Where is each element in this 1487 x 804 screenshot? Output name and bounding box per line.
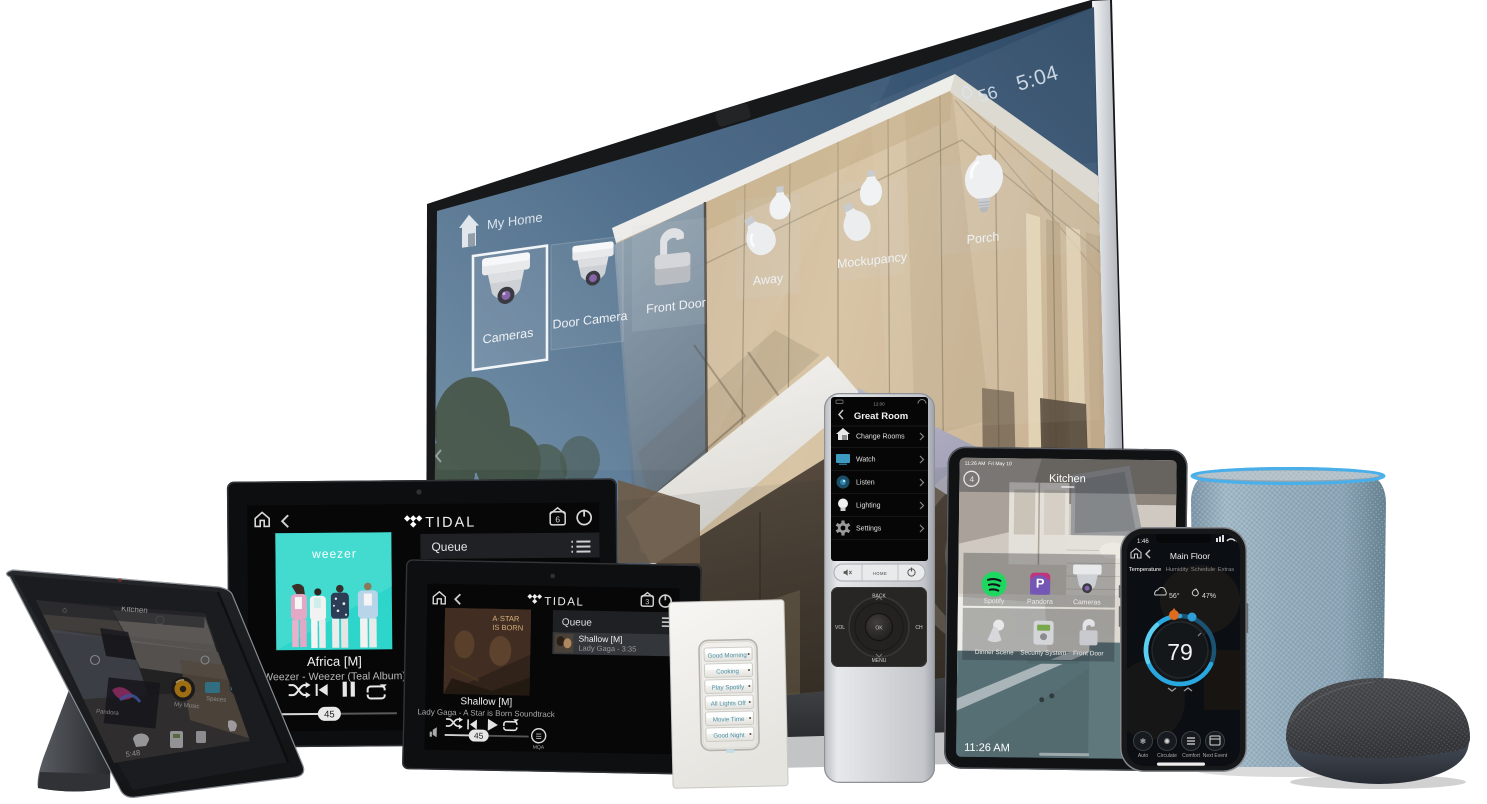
svg-text:Movie Time: Movie Time: [713, 716, 745, 724]
svg-text:VOL: VOL: [835, 625, 845, 631]
svg-text:11:26 AM Fri May 10: 11:26 AM Fri May 10: [965, 461, 1012, 468]
svg-text:Lady Gaga - 3:35: Lady Gaga - 3:35: [578, 644, 636, 654]
svg-text:weezer: weezer: [311, 547, 357, 561]
svg-text:Cameras: Cameras: [1073, 599, 1101, 606]
svg-text:Schedule: Schedule: [1191, 567, 1215, 573]
svg-text:TIDAL: TIDAL: [544, 596, 584, 609]
svg-text:IS BORN: IS BORN: [492, 623, 523, 633]
svg-text:6: 6: [555, 514, 560, 524]
svg-text:Auto: Auto: [1138, 753, 1149, 759]
svg-text:Shallow [M]: Shallow [M]: [460, 696, 512, 708]
svg-text:Front Door: Front Door: [1073, 650, 1104, 657]
svg-text:45: 45: [474, 731, 484, 741]
svg-text:Circulate: Circulate: [1157, 753, 1177, 759]
svg-text:79: 79: [1167, 639, 1193, 665]
svg-text:12:00: 12:00: [873, 402, 885, 407]
svg-text:TIDAL: TIDAL: [425, 515, 476, 531]
svg-text:Settings: Settings: [856, 526, 882, 533]
svg-text:HOME: HOME: [873, 571, 888, 576]
svg-text:Pandora: Pandora: [1027, 599, 1053, 606]
svg-text:All Lights Off: All Lights Off: [711, 700, 746, 708]
svg-text:Play Spotify: Play Spotify: [711, 684, 745, 692]
svg-text:11:26 AM: 11:26 AM: [964, 742, 1010, 755]
svg-text:P: P: [1036, 576, 1045, 591]
svg-text:Watch: Watch: [856, 457, 876, 464]
svg-text:Queue: Queue: [431, 540, 467, 554]
svg-text:3: 3: [645, 597, 649, 606]
svg-text:Dinner Scene: Dinner Scene: [975, 649, 1014, 656]
svg-text:Kitchen: Kitchen: [1049, 473, 1086, 485]
svg-text:CH: CH: [915, 625, 923, 631]
svg-text:Temperature: Temperature: [1129, 567, 1162, 573]
svg-text:4: 4: [970, 475, 975, 484]
svg-text:Good Morning: Good Morning: [707, 652, 747, 660]
svg-text:Queue: Queue: [562, 617, 593, 629]
svg-text:OK: OK: [875, 626, 883, 632]
svg-text:Change Rooms: Change Rooms: [856, 434, 905, 441]
svg-text:47%: 47%: [1202, 593, 1216, 600]
svg-text:BACK: BACK: [872, 594, 886, 600]
svg-text:Listen: Listen: [856, 480, 875, 487]
svg-text:Comfort: Comfort: [1182, 753, 1200, 759]
svg-text:Spotify: Spotify: [984, 598, 1005, 605]
svg-text:☰: ☰: [535, 734, 541, 741]
svg-text:Extras: Extras: [1218, 567, 1235, 573]
svg-text:Weezer - Weezer (Teal Album): Weezer - Weezer (Teal Album): [263, 670, 406, 683]
svg-text:❄: ❄: [1140, 737, 1147, 746]
svg-text:Next Event: Next Event: [1203, 753, 1228, 759]
svg-text:MQA: MQA: [533, 745, 545, 751]
svg-text:Lighting: Lighting: [856, 503, 881, 510]
svg-text:Main Floor: Main Floor: [1170, 551, 1210, 561]
svg-text:Great Room: Great Room: [854, 411, 908, 422]
svg-text:✺: ✺: [1164, 737, 1171, 746]
svg-text:56°: 56°: [1169, 592, 1180, 600]
svg-text:Humidity: Humidity: [1166, 567, 1189, 573]
svg-text:Good Night: Good Night: [713, 732, 745, 740]
svg-text:MENU: MENU: [872, 658, 887, 664]
svg-text:Cooking: Cooking: [716, 668, 739, 676]
svg-text:Security System: Security System: [1020, 649, 1066, 657]
svg-text:1:46: 1:46: [1137, 539, 1149, 545]
svg-text:Africa [M]: Africa [M]: [307, 654, 362, 669]
svg-text:45: 45: [324, 709, 335, 720]
